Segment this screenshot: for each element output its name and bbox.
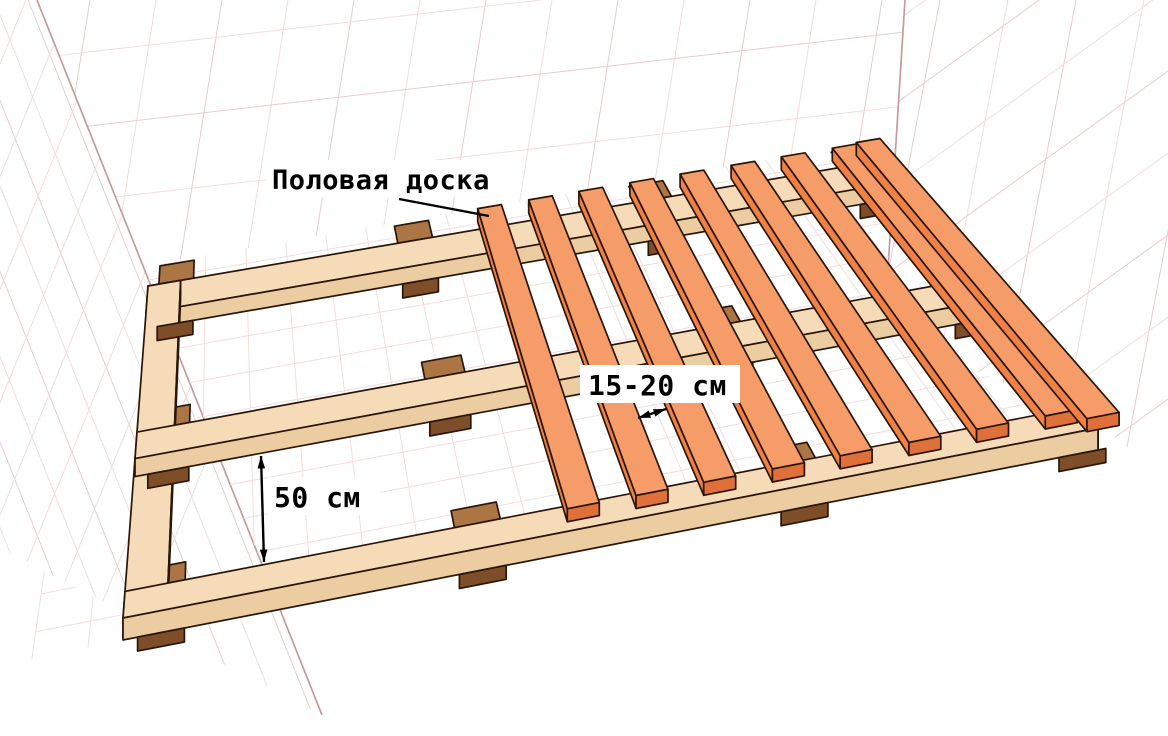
lag-spacing-label: 50 см [274,481,361,514]
floor-construction-diagram: Половая доска 15-20 см 50 см [0,0,1168,736]
scene: Половая доска 15-20 см 50 см [0,0,1168,736]
floorboard-label: Половая доска [272,165,490,196]
board-spacing-label: 15-20 см [588,369,727,402]
